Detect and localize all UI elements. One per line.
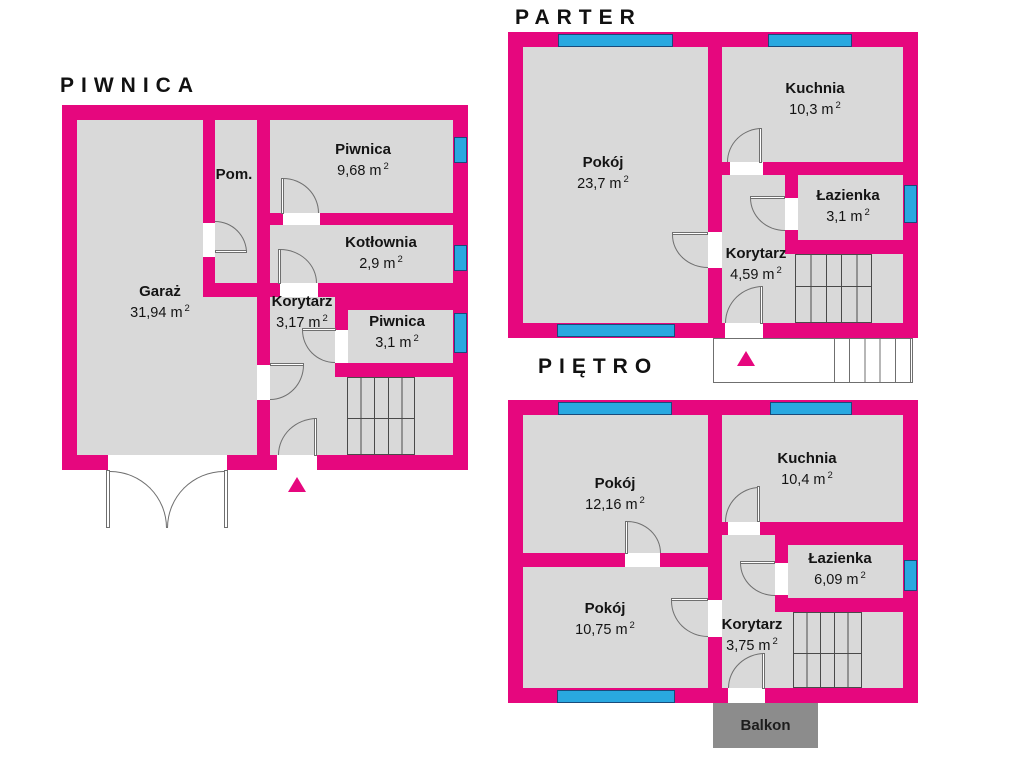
window — [454, 137, 467, 163]
room-label-pokoj-1216: Pokój 12,16 m2 — [555, 475, 675, 514]
interior-wall — [257, 400, 270, 455]
door-opening — [203, 223, 215, 257]
interior-wall — [708, 415, 722, 600]
door-leaf — [281, 178, 284, 214]
balcony-door-opening — [728, 688, 765, 703]
floor-plan-canvas: PIWNICA PARTER PIĘTRO Balkon — [0, 0, 1024, 769]
balcony-label: Balkon — [740, 717, 790, 734]
room-label-kuchnia-pietro: Kuchnia 10,4 m2 — [747, 450, 867, 489]
door-leaf — [750, 196, 785, 199]
balcony: Balkon — [713, 703, 818, 748]
window — [770, 402, 852, 415]
door-opening — [728, 522, 760, 535]
room-label-kotlownia: Kotłownia 2,9 m2 — [321, 234, 441, 273]
door-opening — [257, 365, 270, 400]
room-label-korytarz-pietro: Korytarz 3,75 m2 — [692, 616, 812, 655]
door-leaf — [671, 598, 708, 601]
window — [558, 34, 673, 47]
window — [454, 245, 467, 271]
door-opening — [625, 553, 660, 567]
room-label-kuchnia-parter: Kuchnia 10,3 m2 — [755, 80, 875, 119]
door-leaf — [672, 232, 708, 235]
outdoor-stairs — [834, 339, 914, 382]
room-label-lazienka-parter: Łazienka 3,1 m2 — [788, 187, 908, 226]
interior-wall — [523, 553, 625, 567]
room-label-garaz: Garaż 31,94 m2 — [100, 283, 220, 322]
window — [904, 560, 917, 591]
interior-wall — [785, 230, 798, 240]
door-leaf — [270, 363, 304, 366]
floor-title-pietro: PIĘTRO — [538, 355, 658, 379]
window — [768, 34, 852, 47]
stairs-piwnica — [347, 377, 415, 455]
floor-title-piwnica: PIWNICA — [60, 74, 200, 98]
door-leaf — [762, 653, 765, 689]
room-label-pokoj-parter: Pokój 23,7 m2 — [543, 154, 663, 193]
door-leaf — [759, 128, 762, 163]
interior-wall — [722, 162, 730, 175]
entrance-door-opening — [277, 455, 317, 470]
door-leaf — [278, 249, 281, 284]
room-label-korytarz-parter: Korytarz 4,59 m2 — [696, 245, 816, 284]
door-leaf — [314, 418, 317, 456]
window — [558, 402, 672, 415]
interior-wall — [270, 213, 283, 225]
door-leaf — [740, 561, 775, 564]
room-label-piwnica-968: Piwnica 9,68 m2 — [303, 141, 423, 180]
interior-wall — [660, 553, 722, 567]
entrance-arrow-icon — [288, 477, 306, 492]
garage-door-leaf — [224, 470, 228, 528]
interior-wall — [775, 598, 903, 612]
floor-title-parter: PARTER — [515, 6, 642, 30]
window — [557, 324, 675, 337]
room-label-pokoj-1075: Pokój 10,75 m2 — [545, 600, 665, 639]
garage-door-opening — [108, 455, 227, 470]
door-leaf — [215, 250, 247, 253]
door-leaf — [757, 486, 760, 522]
door-leaf — [625, 521, 628, 554]
entrance-arrow-icon — [737, 351, 755, 366]
garage-door-swing — [167, 471, 224, 528]
interior-wall — [320, 213, 455, 225]
interior-wall — [335, 363, 455, 377]
room-label-lazienka-pietro: Łazienka 6,09 m2 — [780, 550, 900, 589]
door-leaf — [760, 286, 763, 324]
interior-wall — [718, 522, 728, 535]
interior-wall — [708, 47, 722, 232]
interior-wall — [785, 532, 903, 545]
door-opening — [730, 162, 763, 175]
door-opening — [283, 213, 320, 225]
room-label-piwnica-31: Piwnica 3,1 m2 — [337, 313, 457, 352]
window — [557, 690, 675, 703]
garage-door-leaf — [106, 470, 110, 528]
room-label-pom: Pom. — [204, 166, 264, 183]
garage-door-swing — [110, 471, 167, 528]
entrance-door-opening — [725, 323, 763, 338]
interior-wall — [763, 162, 903, 175]
